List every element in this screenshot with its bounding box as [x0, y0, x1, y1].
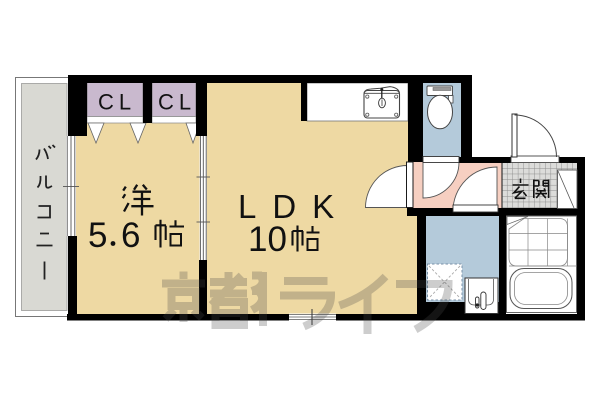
svg-text:10: 10: [248, 220, 287, 259]
svg-text:5: 5: [88, 216, 107, 255]
svg-text:CL: CL: [158, 90, 196, 115]
svg-text:6: 6: [121, 216, 140, 255]
svg-text:CL: CL: [98, 90, 136, 115]
